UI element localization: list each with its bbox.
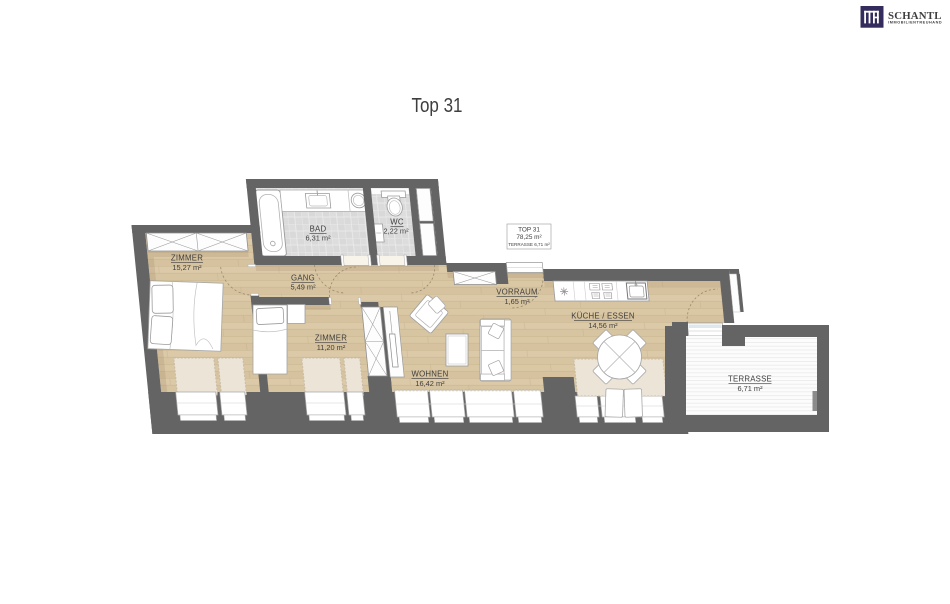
svg-text:BAD: BAD: [310, 225, 327, 234]
svg-text:Top 31: Top 31: [412, 95, 463, 117]
svg-text:16,42 m²: 16,42 m²: [415, 379, 445, 388]
svg-text:6,71 m²: 6,71 m²: [737, 384, 763, 393]
svg-text:15,27 m²: 15,27 m²: [172, 263, 202, 272]
svg-text:TERRASSE 6,71 m²: TERRASSE 6,71 m²: [508, 242, 550, 247]
svg-text:ZIMMER: ZIMMER: [315, 334, 347, 343]
svg-text:1,65 m²: 1,65 m²: [504, 297, 530, 306]
svg-text:78,25 m²: 78,25 m²: [516, 234, 541, 241]
svg-text:6,31 m²: 6,31 m²: [305, 234, 331, 243]
svg-text:11,20 m²: 11,20 m²: [317, 343, 346, 352]
svg-text:VORRAUM: VORRAUM: [496, 288, 538, 297]
svg-text:TERRASSE: TERRASSE: [728, 375, 772, 384]
svg-text:GANG: GANG: [291, 274, 315, 283]
svg-text:2,22 m²: 2,22 m²: [383, 227, 409, 236]
svg-text:14,56 m²: 14,56 m²: [588, 321, 618, 330]
svg-text:ZIMMER: ZIMMER: [171, 254, 203, 263]
svg-text:IMMOBILIENTREUHAND: IMMOBILIENTREUHAND: [888, 20, 942, 24]
svg-text:WC: WC: [390, 218, 404, 227]
svg-text:TOP 31: TOP 31: [518, 227, 540, 234]
svg-text:KÜCHE / ESSEN: KÜCHE / ESSEN: [571, 312, 634, 321]
svg-text:WOHNEN: WOHNEN: [411, 370, 448, 379]
svg-text:5,49 m²: 5,49 m²: [290, 283, 316, 292]
